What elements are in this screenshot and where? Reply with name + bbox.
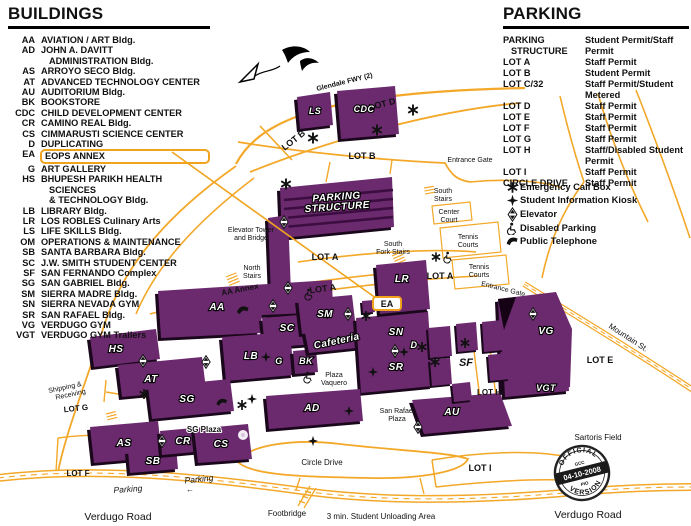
building-row-au: AUAUDITORIUM Bldg. [8, 87, 210, 97]
building-row-sb: SBSANTA BARBARA Bldg. [8, 247, 210, 257]
label-elevator-tower-2: and Bridge [234, 235, 268, 242]
north-arrow-sketch [240, 46, 319, 82]
parking-legend-title: PARKING [503, 4, 689, 29]
label-ad: AD [303, 403, 319, 414]
building-row-sn: SNSIERRA NEVADA GYM [8, 299, 210, 309]
label-cdc: CDC [354, 104, 375, 114]
label-shipping-receiving: Shipping & Receiving [48, 381, 87, 403]
label-cr: CR [175, 436, 191, 447]
legend-row-elevator: Elevator [505, 207, 689, 222]
emergency-call-box-icon [505, 181, 520, 194]
label-lb: LB [244, 351, 258, 362]
label-entrance-gate-top: Entrance Gate [447, 157, 492, 164]
building-row-hs: HSBHUPESH PARIKH HEALTH SCIENCES & TECHN… [8, 174, 210, 205]
label-sc: SC [280, 323, 295, 334]
building-cdc [334, 86, 399, 142]
fountain-center [241, 433, 245, 437]
label-sm: SM [317, 309, 333, 320]
building-row-ea-highlighted: EAEOPS ANNEX [8, 149, 210, 163]
building-row-aa: AAAVIATION / ART Bldg. [8, 35, 210, 45]
parking-direction-arrow: ← [186, 485, 194, 494]
label-plaza-vaquero-1: Plaza [325, 372, 343, 379]
building-row-d: DDUPLICATING [8, 139, 210, 149]
label-lot-g: LOT G [63, 403, 88, 415]
label-lot-a-2: LOT A [427, 271, 454, 281]
parking-row-lot-b: LOT BStudent Permit [503, 68, 689, 79]
label-circle-drive: Circle Drive [301, 458, 343, 467]
disabled-parking-icon [505, 222, 520, 235]
label-lot-e: LOT E [587, 355, 614, 365]
north-stairs-hatch [226, 273, 240, 285]
label-elevator-tower-1: Elevator Tower [228, 227, 275, 234]
label-san-rafael-1: San Rafael [380, 408, 415, 415]
label-ls: LS [309, 106, 321, 116]
building-row-sg: SGSAN GABRIEL Bldg. [8, 278, 210, 288]
building-row-vg: VGVERDUGO GYM [8, 320, 210, 330]
label-center-court-2: Court [440, 217, 457, 224]
label-entrance-gate-mid: Entrance Gate [480, 281, 526, 299]
building-row-cs: CSCIMMARUSTI SCIENCE CENTER [8, 129, 210, 139]
label-lot-b-2: LOT B [280, 128, 308, 153]
label-lot-h: LOT H [477, 388, 501, 397]
parking-row-lot-g: LOT GStaff Permit [503, 134, 689, 145]
parking-row-lot-i: LOT IStaff Permit [503, 167, 689, 178]
label-sg-plaza: SG Plaza [187, 425, 222, 434]
label-tennis-1a: Tennis [458, 234, 479, 241]
student-info-kiosk-icon [247, 394, 257, 404]
label-aa: AA [208, 302, 224, 313]
building-row-sc: SCJ.W. SMITH STUDENT CENTER [8, 258, 210, 268]
parking-legend: PARKING PARKING STRUCTUREStudent Permit/… [503, 4, 689, 189]
parking-row-lot-d: LOT DStaff Permit [503, 101, 689, 112]
building-row-cdc: CDCCHILD DEVELOPMENT CENTER [8, 108, 210, 118]
label-south-stairs-1: South [434, 188, 452, 195]
elevator-icon [505, 207, 520, 222]
building-row-sr: SRSAN RAFAEL Bldg. [8, 310, 210, 320]
student-info-kiosk-icon [308, 436, 318, 446]
label-center-court-1: Center [438, 209, 460, 216]
building-row-cr: CRCAMINO REAL Bldg. [8, 118, 210, 128]
label-g: G [275, 356, 282, 366]
label-lot-i: LOT I [469, 463, 492, 473]
label-lot-b: LOT B [349, 151, 376, 161]
emergency-call-box-icon [432, 252, 440, 261]
label-sf: SF [459, 357, 473, 369]
symbols-legend: Emergency Call Box Student Information K… [505, 181, 689, 248]
label-north-stairs-2: Stairs [243, 273, 261, 280]
label-sartoris-field: Sartoris Field [574, 433, 621, 442]
building-row-om: OMOPERATIONS & MAINTENANCE [8, 237, 210, 247]
label-south-fork-2: Fork Stairs [376, 249, 410, 256]
label-lot-a-1: LOT A [312, 252, 339, 262]
label-verdugo-road-right: Verdugo Road [554, 509, 621, 521]
emergency-call-box-icon [238, 400, 247, 410]
label-ea: EA [381, 299, 394, 309]
label-d: D [411, 340, 418, 350]
label-tennis-2a: Tennis [469, 264, 490, 271]
label-cs: CS [214, 439, 229, 450]
building-row-g: GART GALLERY [8, 164, 210, 174]
campus-map-page: Glendale FWY (2) LOT D LOT B LOT B Entra… [0, 0, 691, 526]
label-bk: BK [299, 356, 314, 366]
label-verdugo-road-left: Verdugo Road [84, 511, 151, 523]
building-row-sm: SMSIERRA MADRE Bldg. [8, 289, 210, 299]
legend-row-call-box: Emergency Call Box [505, 181, 689, 194]
buildings-legend-title: BUILDINGS [8, 4, 210, 29]
west-stairs-hatch [106, 412, 117, 420]
building-row-vgt: VGTVERDUGO GYM Trailers [8, 330, 210, 340]
label-hs: HS [109, 344, 124, 355]
label-lot-f: LOT F [66, 469, 89, 478]
label-parking-left: Parking [113, 483, 143, 495]
parking-row-lot-h: LOT HStaff/Disabled Student Permit [503, 145, 689, 167]
parking-row-lot-e: LOT EStaff Permit [503, 112, 689, 123]
label-lr: LR [395, 274, 410, 285]
building-row-ad: ADJOHN A. DAVITT ADMINISTRATION Bldg. [8, 45, 210, 66]
parking-row-lot-f: LOT FStaff Permit [503, 123, 689, 134]
parking-row-lot-a: LOT AStaff Permit [503, 57, 689, 68]
label-san-rafael-2: Plaza [388, 416, 406, 423]
eops-annex-highlight: EOPS ANNEX [40, 149, 210, 163]
student-info-kiosk-icon [505, 194, 520, 207]
label-south-stairs-2: Stairs [434, 196, 452, 203]
label-north-stairs-1: North [243, 265, 260, 272]
label-vg: VG [538, 326, 553, 337]
label-as: AS [116, 438, 132, 449]
parking-row-lot-c32: LOT C/32Staff Permit/Student Metered [503, 79, 689, 101]
label-south-fork-1: South [384, 241, 402, 248]
label-plaza-vaquero-2: Vaquero [321, 380, 347, 387]
public-telephone-icon [505, 235, 520, 248]
label-sb: SB [146, 456, 161, 467]
label-sg: SG [179, 394, 194, 405]
label-tennis-1b: Courts [458, 242, 479, 249]
parking-row-structure: PARKING STRUCTUREStudent Permit/Staff Pe… [503, 35, 689, 57]
buildings-legend: BUILDINGS AAAVIATION / ART Bldg. ADJOHN … [8, 4, 210, 341]
building-row-lb: LBLIBRARY Bldg. [8, 206, 210, 216]
label-vgt: VGT [536, 383, 557, 393]
building-row-at: ATADVANCED TECHNOLOGY CENTER [8, 77, 210, 87]
legend-row-disabled-parking: Disabled Parking [505, 222, 689, 235]
label-au: AU [443, 407, 460, 418]
legend-row-public-telephone: Public Telephone [505, 235, 689, 248]
label-unloading-area: 3 min. Student Unloading Area [327, 512, 436, 521]
label-at: AT [143, 374, 158, 385]
building-row-lr: LRLOS ROBLES Culinary Arts [8, 216, 210, 226]
label-sn: SN [389, 327, 404, 338]
building-row-ls: LSLIFE SKILLS Bldg. [8, 226, 210, 236]
emergency-call-box-icon [308, 133, 318, 144]
emergency-call-box-icon [408, 105, 418, 116]
legend-row-kiosk: Student Information Kiosk [505, 194, 689, 207]
building-row-bk: BKBOOKSTORE [8, 97, 210, 107]
label-footbridge: Footbridge [268, 509, 307, 518]
label-sr: SR [389, 362, 404, 373]
building-row-as: ASARROYO SECO Bldg. [8, 66, 210, 76]
road-lot-b [238, 142, 470, 182]
label-tennis-2b: Courts [469, 272, 490, 279]
building-row-sf: SFSAN FERNANDO Complex [8, 268, 210, 278]
